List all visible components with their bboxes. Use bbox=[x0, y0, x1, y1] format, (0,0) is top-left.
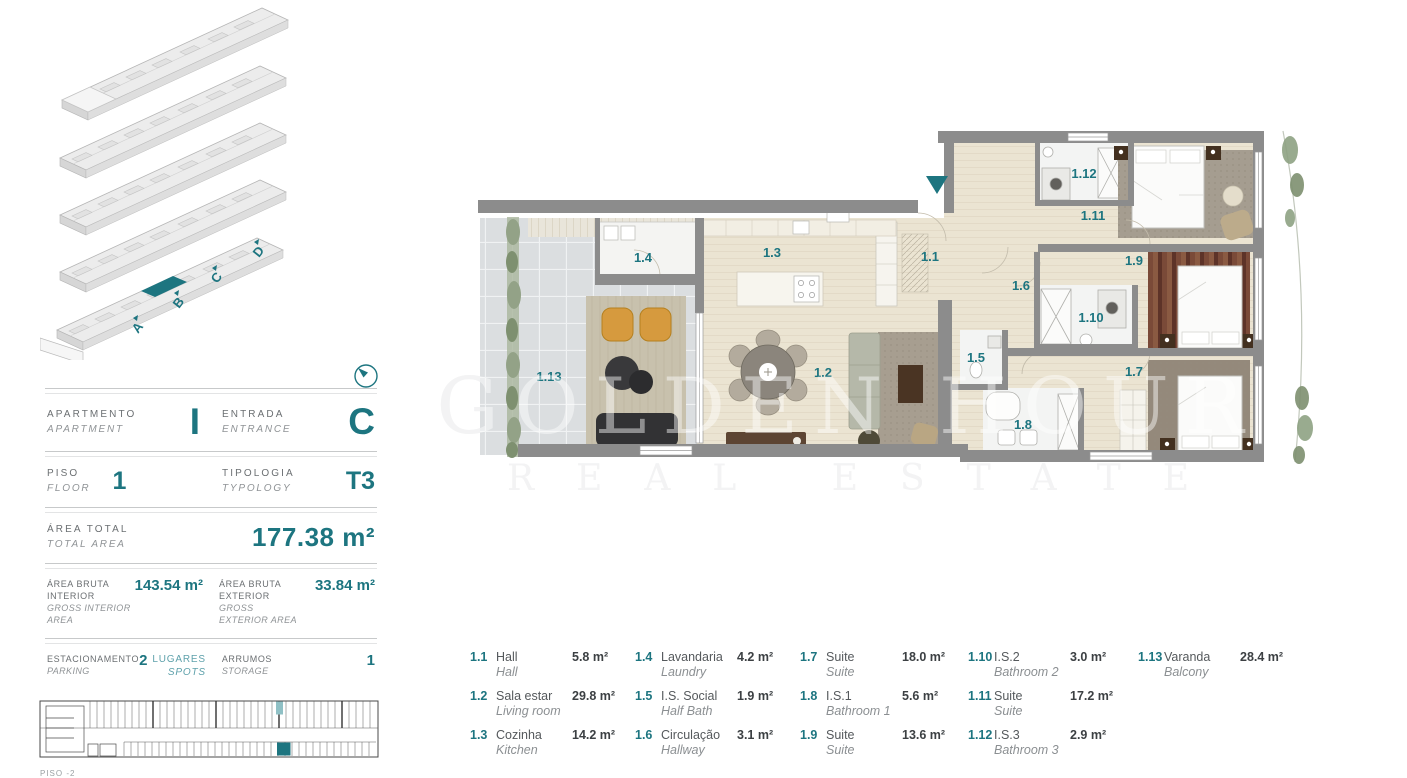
legend-room-name-pt: Suite bbox=[826, 650, 894, 665]
legend-item: 1.10I.S.2Bathroom 23.0 m² bbox=[968, 650, 1138, 680]
apartment-label: APARTMENTO APARTMENT bbox=[47, 407, 136, 437]
legend-room-area: 29.8 m² bbox=[572, 689, 615, 703]
building-axonometric: A B C D bbox=[40, 0, 380, 360]
legend-room-number: 1.13 bbox=[1138, 650, 1164, 664]
legend-room-name-pt: I.S.2 bbox=[994, 650, 1062, 665]
legend-room-name-en: Bathroom 3 bbox=[994, 743, 1062, 758]
legend-room-name-pt: I.S.1 bbox=[826, 689, 894, 704]
room-label-hall: 1.1 bbox=[921, 249, 939, 264]
parking-value: 2 LUGARES SPOTS bbox=[139, 653, 206, 679]
legend-room-name-pt: I.S.3 bbox=[994, 728, 1062, 743]
parking-label: ESTACIONAMENTO PARKING bbox=[47, 653, 139, 677]
legend-room-number: 1.12 bbox=[968, 728, 994, 742]
legend-room-name-pt: Varanda bbox=[1164, 650, 1232, 665]
legend-room-number: 1.2 bbox=[470, 689, 496, 703]
legend-item: 1.3CozinhaKitchen14.2 m² bbox=[470, 728, 635, 758]
planter-left bbox=[506, 217, 521, 458]
legend-room-area: 3.0 m² bbox=[1070, 650, 1106, 664]
gross-exterior-value: 33.84 m² bbox=[315, 578, 375, 593]
legend-room-name-en: Kitchen bbox=[496, 743, 564, 758]
legend-room-number: 1.7 bbox=[800, 650, 826, 664]
legend-room-name-en: Laundry bbox=[661, 665, 729, 680]
storage-label: ARRUMOS STORAGE bbox=[222, 653, 272, 677]
legend-room-name-en: Hall bbox=[496, 665, 564, 680]
typology-label: TIPOLOGIA TYPOLOGY bbox=[222, 466, 295, 496]
legend-item: 1.7SuiteSuite18.0 m² bbox=[800, 650, 968, 680]
apartment-value: I bbox=[190, 403, 200, 440]
legend-column: 1.1HallHall5.8 m²1.2Sala estarLiving roo… bbox=[470, 650, 635, 767]
room-label-bath3: 1.12 bbox=[1071, 166, 1096, 181]
legend-room-name-en: Suite bbox=[826, 665, 894, 680]
legend-room-area: 4.2 m² bbox=[737, 650, 773, 664]
gross-interior-value: 143.54 m² bbox=[135, 578, 203, 593]
floor-typology-row: PISO FLOOR 1 TIPOLOGIA TYPOLOGY T3 bbox=[45, 457, 377, 507]
legend-room-name-en: Balcony bbox=[1164, 665, 1232, 680]
typology-value: T3 bbox=[346, 469, 375, 494]
room-legend: 1.1HallHall5.8 m²1.2Sala estarLiving roo… bbox=[455, 650, 1318, 767]
legend-room-name-en: Hallway bbox=[661, 743, 729, 758]
legend-room-area: 17.2 m² bbox=[1070, 689, 1113, 703]
parking-storage-row: ESTACIONAMENTO PARKING 2 LUGARES SPOTS A… bbox=[45, 644, 377, 690]
storage-value: 1 bbox=[367, 653, 375, 668]
greenery-right bbox=[1282, 131, 1313, 464]
apartment-info-panel: APARTMENTO APARTMENT I ENTRADA ENTRANCE … bbox=[45, 388, 377, 690]
balcony-furniture bbox=[586, 296, 686, 452]
legend-item: 1.4LavandariaLaundry4.2 m² bbox=[635, 650, 800, 680]
room-label-suite2: 1.9 bbox=[1125, 253, 1143, 268]
highlighted-parking-spots bbox=[277, 743, 291, 756]
legend-room-name-en: Living room bbox=[496, 704, 564, 719]
total-area-label: ÁREA TOTAL TOTAL AREA bbox=[47, 522, 129, 552]
legend-room-name-pt: Suite bbox=[994, 689, 1062, 704]
legend-room-number: 1.6 bbox=[635, 728, 661, 742]
legend-room-name-pt: Hall bbox=[496, 650, 564, 665]
legend-item: 1.13VarandaBalcony28.4 m² bbox=[1138, 650, 1318, 680]
legend-room-area: 18.0 m² bbox=[902, 650, 945, 664]
room-label-bath1: 1.8 bbox=[1014, 417, 1032, 432]
legend-room-name-en: Bathroom 2 bbox=[994, 665, 1062, 680]
legend-room-area: 14.2 m² bbox=[572, 728, 615, 742]
legend-item: 1.12I.S.3Bathroom 32.9 m² bbox=[968, 728, 1138, 758]
legend-room-number: 1.9 bbox=[800, 728, 826, 742]
gross-areas-row: ÁREA BRUTA INTERIOR GROSS INTERIOR AREA … bbox=[45, 569, 377, 638]
legend-room-number: 1.4 bbox=[635, 650, 661, 664]
legend-item: 1.5I.S. SocialHalf Bath1.9 m² bbox=[635, 689, 800, 719]
legend-room-area: 13.6 m² bbox=[902, 728, 945, 742]
floor-value: 1 bbox=[112, 469, 126, 494]
legend-room-area: 28.4 m² bbox=[1240, 650, 1283, 664]
highlighted-storage bbox=[276, 702, 283, 715]
legend-room-name-pt: I.S. Social bbox=[661, 689, 729, 704]
gross-exterior-label: ÁREA BRUTA EXTERIOR GROSS EXTERIOR AREA bbox=[219, 578, 305, 627]
floor-label: PISO FLOOR bbox=[47, 466, 90, 496]
room-label-halfbath: 1.5 bbox=[967, 350, 985, 365]
room-label-kitchen: 1.3 bbox=[763, 245, 781, 260]
room-label-laundry: 1.4 bbox=[634, 250, 653, 265]
legend-room-name-pt: Suite bbox=[826, 728, 894, 743]
room-label-hallway: 1.6 bbox=[1012, 278, 1030, 293]
floor-plates bbox=[40, 8, 288, 360]
compass-icon bbox=[351, 361, 381, 391]
legend-room-name-pt: Cozinha bbox=[496, 728, 564, 743]
legend-item: 1.8I.S.1Bathroom 15.6 m² bbox=[800, 689, 968, 719]
legend-room-number: 1.3 bbox=[470, 728, 496, 742]
legend-room-number: 1.8 bbox=[800, 689, 826, 703]
total-area-row: ÁREA TOTAL TOTAL AREA 177.38 m² bbox=[45, 513, 377, 563]
room-label-suite1: 1.7 bbox=[1125, 364, 1143, 379]
entrance-value: C bbox=[348, 403, 375, 440]
legend-room-area: 2.9 m² bbox=[1070, 728, 1106, 742]
legend-column: 1.13VarandaBalcony28.4 m² bbox=[1138, 650, 1318, 767]
legend-column: 1.4LavandariaLaundry4.2 m²1.5I.S. Social… bbox=[635, 650, 800, 767]
room-label-living: 1.2 bbox=[814, 365, 832, 380]
legend-item: 1.1HallHall5.8 m² bbox=[470, 650, 635, 680]
entrance-label: ENTRADA ENTRANCE bbox=[222, 407, 291, 437]
legend-item: 1.6CirculaçãoHallway3.1 m² bbox=[635, 728, 800, 758]
legend-room-number: 1.10 bbox=[968, 650, 994, 664]
legend-room-name-pt: Circulação bbox=[661, 728, 729, 743]
legend-room-number: 1.1 bbox=[470, 650, 496, 664]
legend-column: 1.10I.S.2Bathroom 23.0 m²1.11SuiteSuite1… bbox=[968, 650, 1138, 767]
legend-column: 1.7SuiteSuite18.0 m²1.8I.S.1Bathroom 15.… bbox=[800, 650, 968, 767]
legend-item: 1.2Sala estarLiving room29.8 m² bbox=[470, 689, 635, 719]
legend-item: 1.11SuiteSuite17.2 m² bbox=[968, 689, 1138, 719]
legend-room-name-pt: Sala estar bbox=[496, 689, 564, 704]
legend-room-area: 5.8 m² bbox=[572, 650, 608, 664]
apartment-entrance-row: APARTMENTO APARTMENT I ENTRADA ENTRANCE … bbox=[45, 394, 377, 451]
room-label-balcony: 1.13 bbox=[536, 369, 561, 384]
legend-room-number: 1.11 bbox=[968, 689, 994, 703]
legend-room-name-en: Half Bath bbox=[661, 704, 729, 719]
legend-room-name-en: Suite bbox=[994, 704, 1062, 719]
legend-room-area: 1.9 m² bbox=[737, 689, 773, 703]
legend-room-name-en: Bathroom 1 bbox=[826, 704, 894, 719]
legend-room-number: 1.5 bbox=[635, 689, 661, 703]
legend-item: 1.9SuiteSuite13.6 m² bbox=[800, 728, 968, 758]
gross-interior-label: ÁREA BRUTA INTERIOR GROSS INTERIOR AREA bbox=[47, 578, 133, 627]
legend-room-area: 5.6 m² bbox=[902, 689, 938, 703]
room-label-suite3: 1.11 bbox=[1081, 208, 1106, 223]
parking-plan-drawing bbox=[38, 698, 380, 762]
room-label-bath2: 1.10 bbox=[1078, 310, 1103, 325]
legend-room-name-en: Suite bbox=[826, 743, 894, 758]
legend-room-area: 3.1 m² bbox=[737, 728, 773, 742]
total-area-value: 177.38 m² bbox=[252, 524, 375, 550]
parking-plan: PISO -2 bbox=[38, 698, 380, 778]
legend-room-name-pt: Lavandaria bbox=[661, 650, 729, 665]
apartment-floor-plan: 1.1 1.2 1.3 1.4 1.5 1.6 1.7 1.8 1.9 1.10… bbox=[420, 110, 1340, 490]
